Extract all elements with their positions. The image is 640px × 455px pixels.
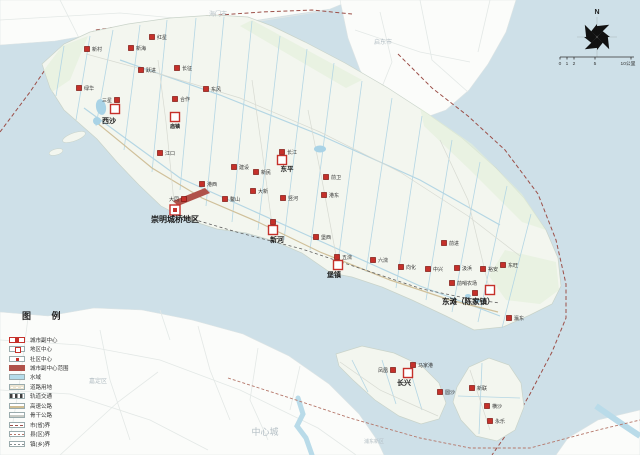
community-center-label: 合作 (180, 96, 190, 103)
district-center-label: 庙镇 (170, 123, 180, 130)
legend-swatch-bcounty (9, 431, 25, 437)
community-center-label: 瀛东 (514, 315, 524, 322)
lake (93, 117, 101, 125)
community-center-marker (77, 86, 82, 91)
community-center-marker (150, 35, 155, 40)
community-center-marker (129, 46, 134, 51)
district-center-label: 长兴 (397, 378, 411, 387)
community-center-marker (158, 151, 163, 156)
community-center-marker (204, 87, 209, 92)
community-center-marker (450, 281, 455, 286)
community-center-marker (481, 267, 486, 272)
community-center-marker (501, 263, 506, 268)
community-center-label: 凤凰 (378, 368, 388, 374)
community-center-marker (251, 189, 256, 194)
community-center-marker (335, 255, 340, 260)
map-stage: 海门市启东市嘉定区中心城浦东新区新村新海红星跃进长征东风绿华三星合作江口港西大同… (0, 0, 640, 455)
legend-item: 社区中心 (9, 354, 127, 363)
community-center-marker (411, 363, 416, 368)
district-center-label: 堡镇 (327, 270, 341, 279)
community-center-label: 新联 (477, 385, 487, 392)
community-center-marker (399, 265, 404, 270)
community-center-marker (115, 98, 120, 103)
legend-item-label: 城市副中心 (30, 336, 58, 344)
district-center-marker (404, 369, 413, 378)
community-center-label: 向化 (406, 264, 416, 271)
legend-item: 水域 (9, 373, 127, 382)
community-center-label: 港西 (207, 181, 217, 188)
community-center-marker (85, 47, 90, 52)
community-center-label: 大同 (169, 196, 179, 203)
community-center-label: 前进 (449, 240, 459, 247)
scalebar-label: 2 (573, 61, 576, 67)
community-center-marker (473, 291, 478, 296)
district-center-label: 西沙 (102, 117, 116, 125)
legend-swatch-btown (9, 441, 25, 447)
legend-item-label: 水域 (30, 373, 41, 381)
city-subcenter-label: 崇明城桥地区 (151, 214, 199, 224)
district-center-marker (334, 261, 343, 270)
community-center-label: 三星 (102, 98, 112, 104)
legend-title: 图 例 (22, 309, 127, 322)
district-center-marker (278, 156, 287, 165)
community-center-label: 东风 (211, 86, 221, 93)
community-center-label: 长江 (287, 149, 297, 156)
community-center-marker (200, 182, 205, 187)
legend-swatch-water (9, 374, 25, 380)
legend-item: 地区中心 (9, 344, 127, 353)
community-center-marker (371, 258, 376, 263)
legend-swatch-subcenter (9, 337, 25, 343)
community-center-label: 前哨农场 (457, 280, 477, 287)
background-area-label: 海门市 (209, 10, 227, 18)
legend-item: 道路用地 (9, 382, 127, 391)
legend-item-label: 高速公路 (30, 402, 52, 410)
scalebar-label: 0 (559, 61, 562, 67)
community-center-marker (485, 404, 490, 409)
district-center-marker (269, 226, 278, 235)
community-center-marker (139, 68, 144, 73)
community-center-label: 前卫 (331, 174, 341, 181)
community-center-marker (442, 241, 447, 246)
compass-north-label: N (594, 9, 599, 16)
legend-swatch-roadland (9, 384, 25, 390)
scalebar-label: 1 (566, 61, 569, 67)
legend-item: 城市副中心 (9, 335, 127, 344)
community-center-label: 裕安 (488, 266, 498, 273)
district-center-label: 新河 (270, 235, 284, 244)
legend-item-label: 地区中心 (30, 345, 52, 353)
community-center-label: 六滧 (378, 257, 388, 264)
community-center-marker (254, 170, 259, 175)
community-center-label: 江口 (165, 150, 175, 157)
lake (314, 146, 326, 153)
legend-item: 城市副中心范围 (9, 363, 127, 372)
scalebar-label: 10公里 (621, 61, 636, 67)
district-center-label: 东平 (281, 164, 295, 173)
legend-item: 高速公路 (9, 401, 127, 410)
legend-swatch-highway (9, 403, 25, 409)
community-center-label: 长征 (182, 65, 192, 72)
community-center-label: 新海 (136, 45, 146, 52)
community-center-label: 五滧 (342, 254, 352, 261)
community-center-label: 红星 (157, 34, 167, 41)
community-center-label: 马家港 (418, 362, 433, 369)
community-center-label: 跃进 (146, 67, 156, 74)
background-area-label: 浦东新区 (364, 438, 384, 445)
community-center-marker (280, 150, 285, 155)
community-center-label: 汲浜 (462, 265, 472, 272)
legend-item: 骨干公路 (9, 411, 127, 420)
community-center-label: 中兴 (433, 266, 443, 273)
legend-item-label: 市(省)界 (30, 421, 50, 429)
community-center-marker (488, 419, 493, 424)
community-center-marker (470, 386, 475, 391)
community-center-marker (232, 165, 237, 170)
community-center-marker (281, 196, 286, 201)
legend-item: 镇(乡)界 (9, 439, 127, 448)
legend-item: 轨道交通 (9, 392, 127, 401)
background-area-label: 中心城 (251, 426, 278, 437)
legend-item: 市(省)界 (9, 420, 127, 429)
legend-item: 县(区)界 (9, 429, 127, 438)
district-center-label: 东滩（陈家镇） (442, 296, 495, 306)
community-center-label: 新村 (92, 46, 102, 53)
legend-swatch-community (9, 356, 25, 362)
community-center-marker (438, 390, 443, 395)
community-center-marker (223, 197, 228, 202)
community-center-label: 横沙 (492, 403, 502, 410)
background-area-label: 启东市 (374, 38, 392, 46)
community-center-marker (391, 368, 396, 373)
community-center-marker (271, 220, 276, 225)
community-center-marker (507, 316, 512, 321)
community-center-label: 港东 (329, 192, 339, 199)
community-center-label: 新民 (261, 169, 271, 176)
district-center-marker (171, 113, 180, 122)
legend-swatch-area (9, 365, 25, 371)
community-center-marker (426, 267, 431, 272)
compass-center (596, 36, 598, 38)
community-center-label: 永乐 (495, 418, 505, 425)
community-center-label: 东旺 (508, 262, 518, 269)
community-center-marker (455, 266, 460, 271)
community-center-marker (175, 66, 180, 71)
community-center-marker (324, 175, 329, 180)
community-center-label: 大新 (258, 188, 268, 195)
community-center-label: 建设 (239, 164, 249, 171)
legend-swatch-trunk (9, 412, 25, 418)
community-center-label: 鳌山 (230, 196, 240, 203)
community-center-label: 圆沙 (445, 390, 455, 396)
district-center-marker (111, 105, 120, 114)
legend-items: 城市副中心地区中心社区中心城市副中心范围水域道路用地轨道交通高速公路骨干公路市(… (9, 335, 127, 448)
legend-swatch-district (9, 346, 25, 352)
community-center-marker (173, 97, 178, 102)
community-center-label: 堡西 (321, 234, 331, 241)
map-legend: 图 例 城市副中心地区中心社区中心城市副中心范围水域道路用地轨道交通高速公路骨干… (9, 309, 127, 448)
legend-item-label: 镇(乡)界 (30, 440, 50, 448)
community-center-marker (182, 197, 187, 202)
legend-swatch-rail (9, 393, 25, 399)
legend-item-label: 县(区)界 (30, 430, 50, 438)
legend-item-label: 道路用地 (30, 383, 52, 391)
legend-swatch-bprov (9, 422, 25, 428)
community-center-marker (322, 193, 327, 198)
legend-item-label: 社区中心 (30, 355, 52, 363)
scalebar-label: 5 (594, 61, 597, 67)
city-subcenter-marker-inner (173, 208, 177, 212)
community-center-marker (314, 235, 319, 240)
legend-item-label: 骨干公路 (30, 411, 52, 419)
community-center-label: 竖河 (288, 195, 298, 202)
legend-item-label: 轨道交通 (30, 392, 52, 400)
legend-item-label: 城市副中心范围 (30, 364, 69, 372)
district-center-marker (486, 286, 495, 295)
community-center-label: 绿华 (84, 85, 94, 92)
